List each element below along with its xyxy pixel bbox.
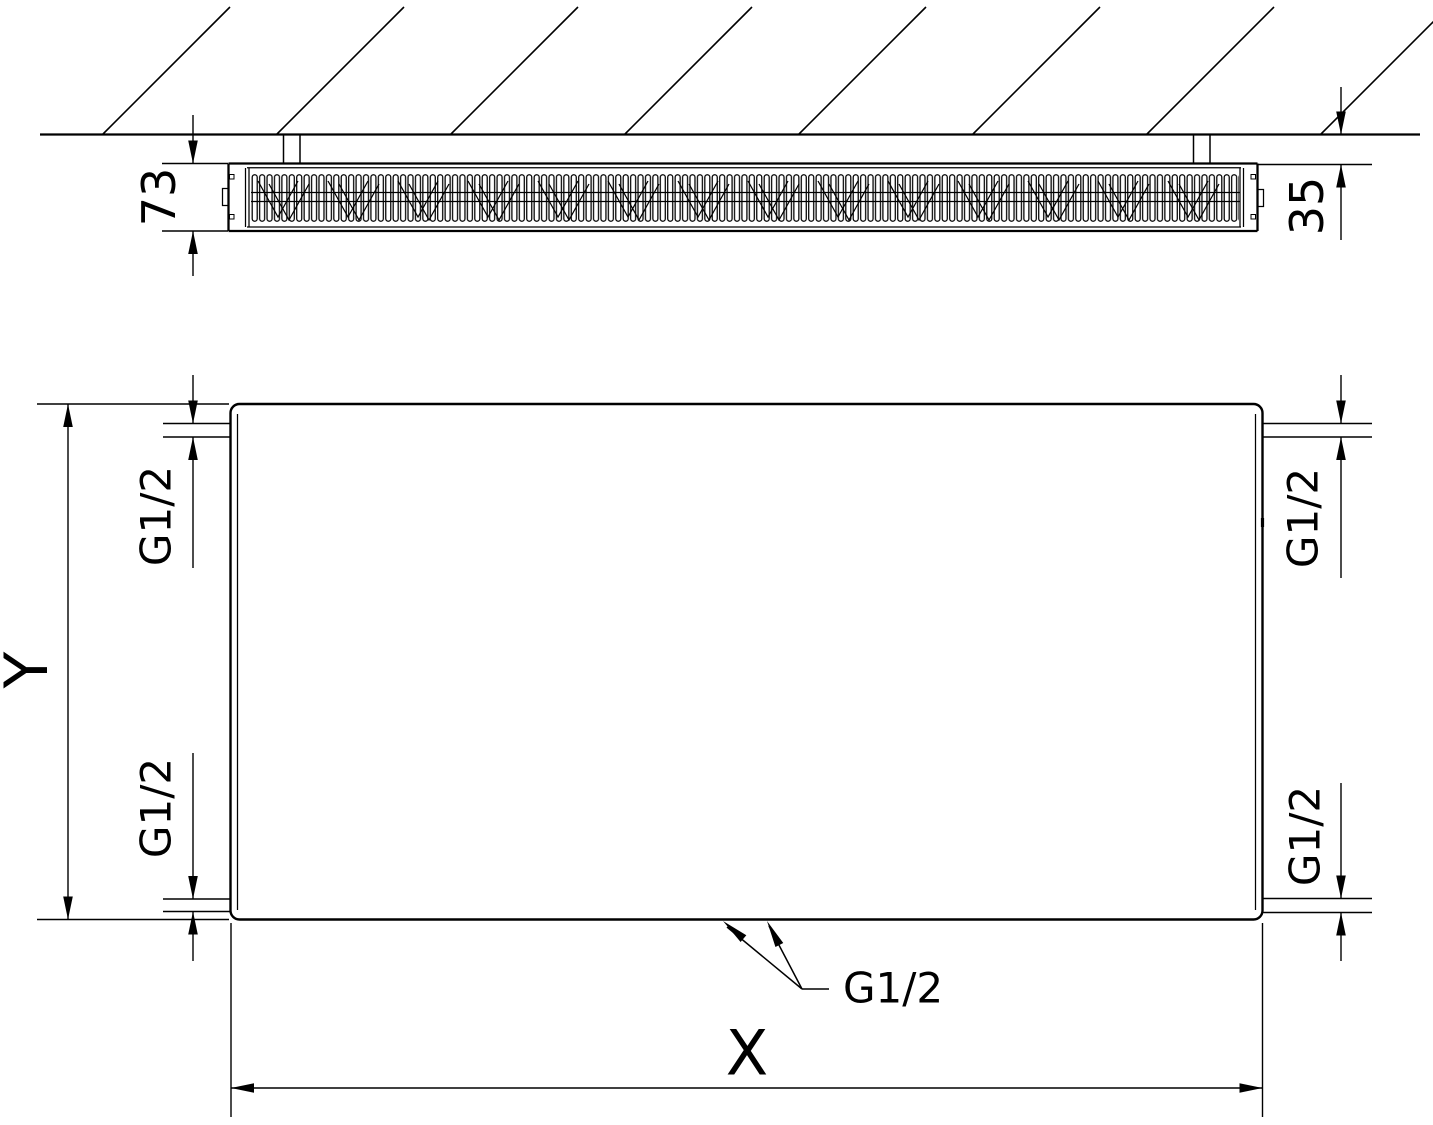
left-cap-tab-bottom — [230, 215, 235, 220]
connection-dimension-bottom-left: G1/2 — [132, 753, 230, 961]
radiator-dimension-drawing: 73 35 Y X G1/2 G1/ — [0, 0, 1433, 1125]
wall-bracket-right — [1194, 136, 1211, 164]
radiator-front-view — [231, 404, 1263, 920]
connection-dimension-bottom-right: G1/2 — [1264, 783, 1373, 961]
right-cap-tab-top — [1251, 175, 1256, 180]
radiator-front-panel — [231, 404, 1263, 920]
depth-value: 73 — [132, 168, 186, 227]
left-cap-tab-top — [230, 175, 235, 180]
connection-dimension-top-right: G1/2 — [1264, 375, 1373, 578]
wall-clearance-value: 35 — [1280, 177, 1334, 236]
height-label: Y — [0, 651, 62, 689]
connection-label-bottom-right: G1/2 — [1281, 786, 1330, 886]
connection-leader-bottom-center: G1/2 — [727, 926, 943, 1013]
width-label: X — [726, 1017, 768, 1090]
connection-label-top-left: G1/2 — [132, 466, 181, 566]
wall-hatching-lines — [103, 7, 1433, 134]
dimension-wall-clearance: 35 — [1258, 87, 1372, 240]
connection-label-bottom-left: G1/2 — [132, 758, 181, 858]
wall-bracket-left — [284, 136, 301, 164]
radiator-top-view — [223, 164, 1264, 232]
wall-section — [40, 7, 1433, 163]
convector-fins — [251, 174, 1240, 222]
connection-label-top-right: G1/2 — [1279, 468, 1328, 568]
dimension-depth: 73 — [132, 115, 228, 276]
dimension-width: X — [231, 923, 1263, 1117]
right-cap-tab-bottom — [1251, 215, 1256, 220]
connection-label-bottom-center: G1/2 — [843, 964, 943, 1013]
dimension-height: Y — [0, 404, 229, 920]
